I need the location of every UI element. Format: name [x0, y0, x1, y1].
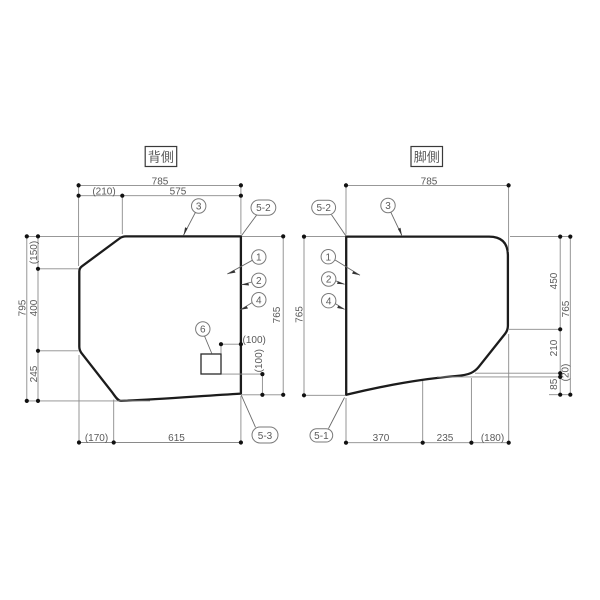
svg-text:400: 400 — [29, 299, 40, 316]
svg-text:3: 3 — [385, 201, 391, 212]
svg-text:765: 765 — [561, 300, 572, 317]
svg-text:6: 6 — [200, 325, 206, 336]
svg-text:765: 765 — [272, 306, 283, 323]
svg-text:575: 575 — [170, 186, 187, 197]
svg-text:210: 210 — [549, 339, 560, 356]
svg-text:(180): (180) — [481, 433, 504, 444]
svg-text:785: 785 — [152, 176, 169, 187]
svg-text:(100): (100) — [254, 349, 265, 372]
svg-text:(150): (150) — [29, 241, 40, 264]
svg-text:4: 4 — [326, 296, 332, 307]
svg-text:5-2: 5-2 — [316, 203, 331, 214]
svg-text:背側: 背側 — [148, 150, 174, 165]
svg-text:5-2: 5-2 — [256, 203, 271, 214]
svg-text:3: 3 — [196, 202, 202, 213]
svg-text:4: 4 — [256, 295, 262, 306]
svg-text:脚側: 脚側 — [414, 150, 440, 165]
svg-text:(100): (100) — [243, 335, 266, 346]
svg-text:450: 450 — [549, 272, 560, 289]
svg-text:5-1: 5-1 — [314, 431, 329, 442]
svg-text:85: 85 — [549, 378, 560, 390]
svg-text:(210): (210) — [92, 186, 115, 197]
svg-text:1: 1 — [326, 252, 332, 263]
svg-text:1: 1 — [256, 253, 262, 264]
svg-text:(170): (170) — [85, 433, 108, 444]
svg-text:785: 785 — [421, 176, 438, 187]
svg-text:235: 235 — [437, 433, 454, 444]
svg-text:370: 370 — [373, 433, 390, 444]
svg-text:2: 2 — [256, 276, 262, 287]
svg-text:(20): (20) — [561, 364, 572, 382]
svg-text:245: 245 — [29, 365, 40, 382]
svg-text:5-3: 5-3 — [258, 431, 273, 442]
svg-text:765: 765 — [295, 306, 306, 323]
svg-text:795: 795 — [18, 299, 29, 316]
svg-text:2: 2 — [326, 275, 332, 286]
svg-text:615: 615 — [168, 433, 185, 444]
